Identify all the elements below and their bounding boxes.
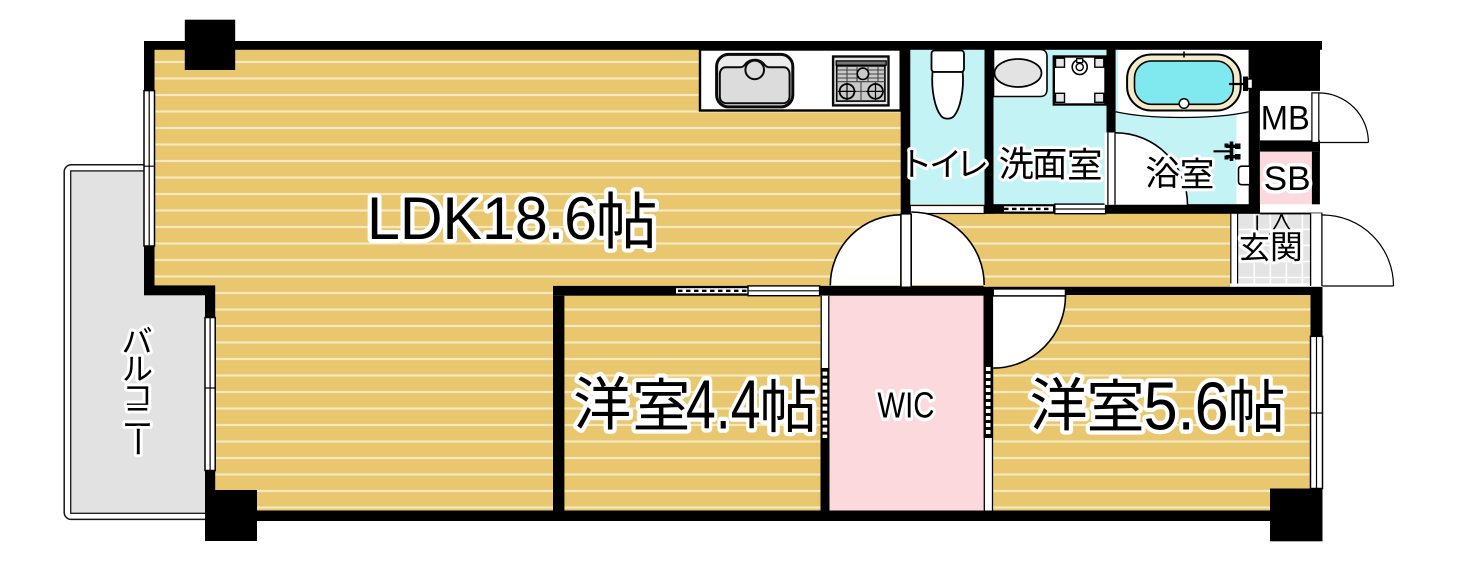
svg-text:WIC: WIC (877, 384, 934, 425)
svg-text:SB: SB (1264, 160, 1311, 198)
svg-text:4.4: 4.4 (686, 366, 761, 444)
svg-text:5.6: 5.6 (1144, 368, 1229, 444)
svg-text:MB: MB (1261, 99, 1310, 137)
svg-text:LDK18.6: LDK18.6 (367, 185, 597, 252)
